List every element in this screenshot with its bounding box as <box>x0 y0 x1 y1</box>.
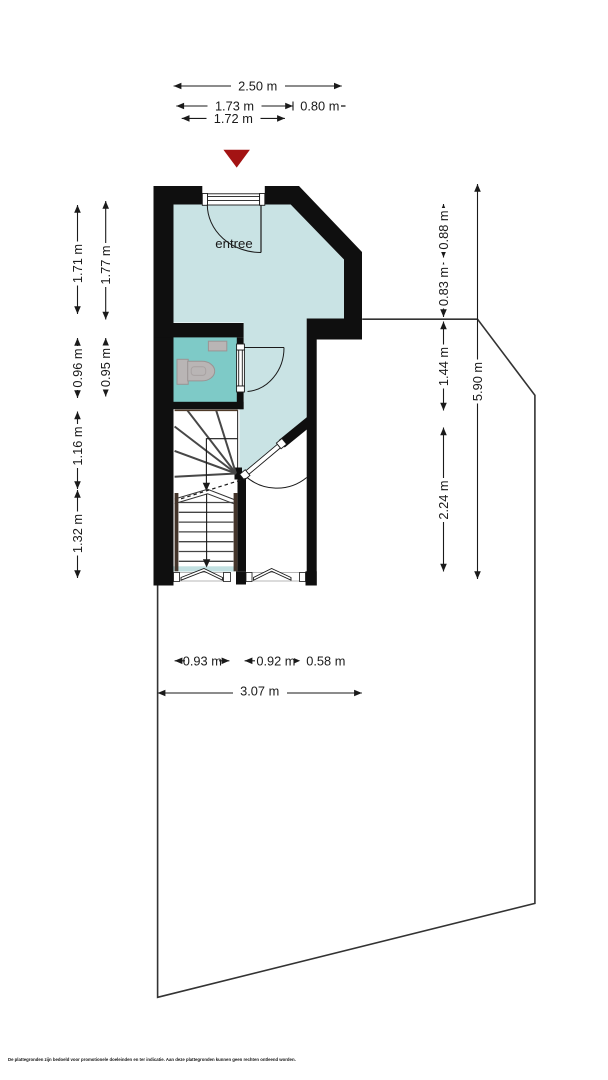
svg-text:1.72 m: 1.72 m <box>214 111 253 126</box>
svg-text:0.95 m: 0.95 m <box>98 348 113 387</box>
svg-text:0.80 m: 0.80 m <box>300 99 339 114</box>
svg-text:2.50 m: 2.50 m <box>238 79 277 94</box>
svg-text:0.93 m: 0.93 m <box>183 653 222 668</box>
svg-text:3.07 m: 3.07 m <box>240 684 279 699</box>
svg-text:entree: entree <box>215 236 252 251</box>
svg-text:1.32 m: 1.32 m <box>70 514 85 553</box>
svg-text:5.90 m: 5.90 m <box>470 362 485 401</box>
svg-text:1.71 m: 1.71 m <box>70 244 85 283</box>
svg-text:0.58 m: 0.58 m <box>306 653 345 668</box>
svg-text:1.77 m: 1.77 m <box>98 245 113 284</box>
svg-text:1.44 m: 1.44 m <box>436 347 451 386</box>
svg-text:0.96 m: 0.96 m <box>70 348 85 387</box>
svg-text:0.88 m: 0.88 m <box>436 210 451 249</box>
svg-text:1.16 m: 1.16 m <box>70 426 85 465</box>
svg-text:2.24 m: 2.24 m <box>436 480 451 519</box>
svg-text:0.83 m: 0.83 m <box>436 267 451 306</box>
svg-text:De plattegronden zijn bedoeld: De plattegronden zijn bedoeld voor promo… <box>8 1057 296 1062</box>
svg-text:0.92 m: 0.92 m <box>256 653 295 668</box>
